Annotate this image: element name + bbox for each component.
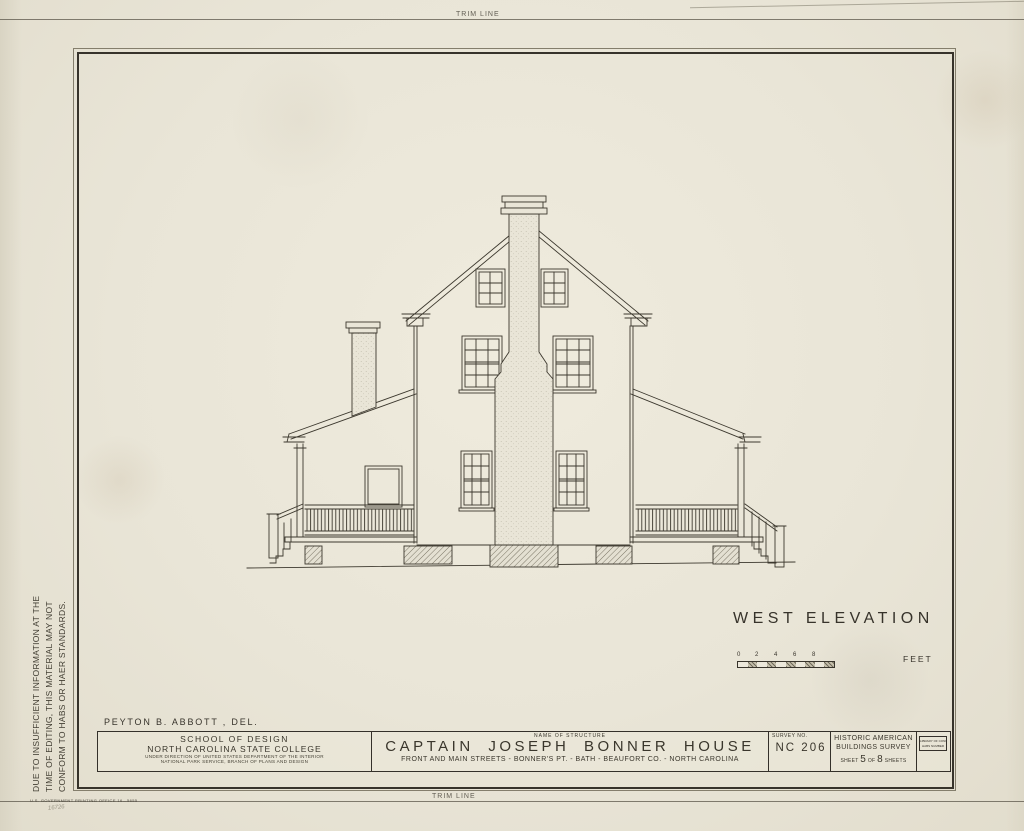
habs-sheet: TRIM LINE TRIM LINE DUE TO INSUFFICIENT … (0, 0, 1024, 831)
porch-post-right (735, 444, 747, 537)
trim-line-top-label: TRIM LINE (456, 11, 500, 18)
porch-floor-left (285, 537, 416, 542)
survey-header: SURVEY NO. (772, 733, 830, 739)
trim-line-bottom-label: TRIM LINE (432, 793, 476, 800)
disclaimer-line: CONFORM TO HABS OR HAER STANDARDS. (56, 590, 69, 792)
structure-name: CAPTAIN JOSEPH BONNER HOUSE (372, 739, 768, 755)
title-block-structure-cell: NAME OF STRUCTURE CAPTAIN JOSEPH BONNER … (372, 732, 769, 771)
title-block-survey-cell: SURVEY NO. NC 206 (769, 732, 831, 771)
corner-board-left (414, 326, 417, 543)
structure-address: FRONT AND MAIN STREETS - BONNER'S PT. - … (372, 756, 768, 763)
editing-disclaimer-note: DUE TO INSUFFICIENT INFORMATION AT THE T… (30, 590, 70, 792)
porch-floor-right (630, 537, 763, 542)
right-porch (630, 389, 786, 567)
porch-door (365, 466, 402, 507)
drawing-title: WEST ELEVATION (733, 610, 934, 628)
stamp-line: HABS NUMBER (920, 744, 946, 749)
title-block-agency-cell: SCHOOL OF DESIGN NORTH CAROLINA STATE CO… (98, 732, 372, 771)
pencil-note: 16726 (48, 804, 65, 812)
title-block-stamp-cell: LIBRARY OF CONGRESS HABS NUMBER (917, 732, 950, 771)
sheet-total: 8 (877, 754, 883, 765)
main-chimney (495, 196, 553, 545)
porch-steps-right (744, 504, 786, 567)
habs-line: HISTORIC AMERICAN (831, 735, 916, 744)
trim-line-top (0, 19, 1024, 20)
graphic-scale: 0 2 4 6 8 FEET (737, 652, 907, 668)
photo-edge-line (690, 1, 1024, 8)
porch-balusters-left (306, 509, 413, 531)
cornice-return-right (624, 314, 652, 326)
attic-window-left (476, 269, 505, 307)
elevation-drawing (235, 185, 810, 580)
foundation-pier (305, 546, 322, 564)
sheet-counter: SHEET 5 OF 8 SHEETS (831, 754, 916, 765)
porch-steps-left (267, 504, 303, 563)
sheets-word: SHEETS (885, 758, 907, 764)
scale-tick: 2 (755, 652, 758, 658)
trim-line-bottom (0, 801, 1024, 802)
porch-balusters-right (637, 509, 736, 531)
agency-line: NATIONAL PARK SERVICE, BRANCH OF PLANS A… (98, 759, 371, 764)
agency-line: NORTH CAROLINA STATE COLLEGE (98, 744, 371, 754)
porch-post-left (294, 444, 306, 537)
attic-window-right (541, 269, 568, 307)
habs-line: BUILDINGS SURVEY (831, 744, 916, 753)
foundation-pier (404, 546, 452, 564)
title-block: SCHOOL OF DESIGN NORTH CAROLINA STATE CO… (97, 731, 951, 772)
of-word: OF (868, 758, 876, 764)
first-floor-window-right (554, 451, 589, 511)
chimney-foundation (490, 545, 558, 567)
left-porch (267, 389, 416, 563)
foundation-pier (596, 546, 632, 564)
gpo-print-note: U.S. GOVERNMENT PRINTING OFFICE 16—5655 (30, 798, 138, 803)
porch-roof-right (631, 389, 745, 439)
delineator-credit: PEYTON B. ABBOTT , DEL. (104, 717, 259, 727)
second-floor-window-right (550, 336, 596, 393)
corner-board-right (630, 326, 633, 543)
foundation-pier (713, 546, 739, 564)
disclaimer-line: TIME OF EDITING, THIS MATERIAL MAY NOT (43, 590, 56, 792)
cornice-return-left (402, 314, 430, 326)
agency-line: SCHOOL OF DESIGN (98, 734, 371, 744)
library-of-congress-stamp: LIBRARY OF CONGRESS HABS NUMBER (919, 736, 947, 751)
survey-number: NC 206 (772, 742, 830, 754)
foundation (305, 545, 739, 567)
scale-tick: 8 (812, 652, 815, 658)
scale-tick: 0 (737, 652, 740, 658)
scale-tick-labels: 0 2 4 6 8 (737, 652, 819, 660)
scale-unit-label: FEET (903, 654, 933, 664)
sheet-word: SHEET (840, 758, 858, 764)
secondary-chimney (346, 322, 380, 416)
disclaimer-line: DUE TO INSUFFICIENT INFORMATION AT THE (30, 590, 43, 792)
window-sill (554, 508, 589, 511)
window-sill (550, 390, 596, 393)
sheet-number: 5 (860, 754, 866, 765)
scale-tick: 6 (793, 652, 796, 658)
scale-bar (737, 661, 835, 668)
first-floor-window-left (459, 451, 494, 511)
window-sill (459, 508, 494, 511)
scale-tick: 4 (774, 652, 777, 658)
title-block-habs-cell: HISTORIC AMERICAN BUILDINGS SURVEY SHEET… (831, 732, 917, 771)
